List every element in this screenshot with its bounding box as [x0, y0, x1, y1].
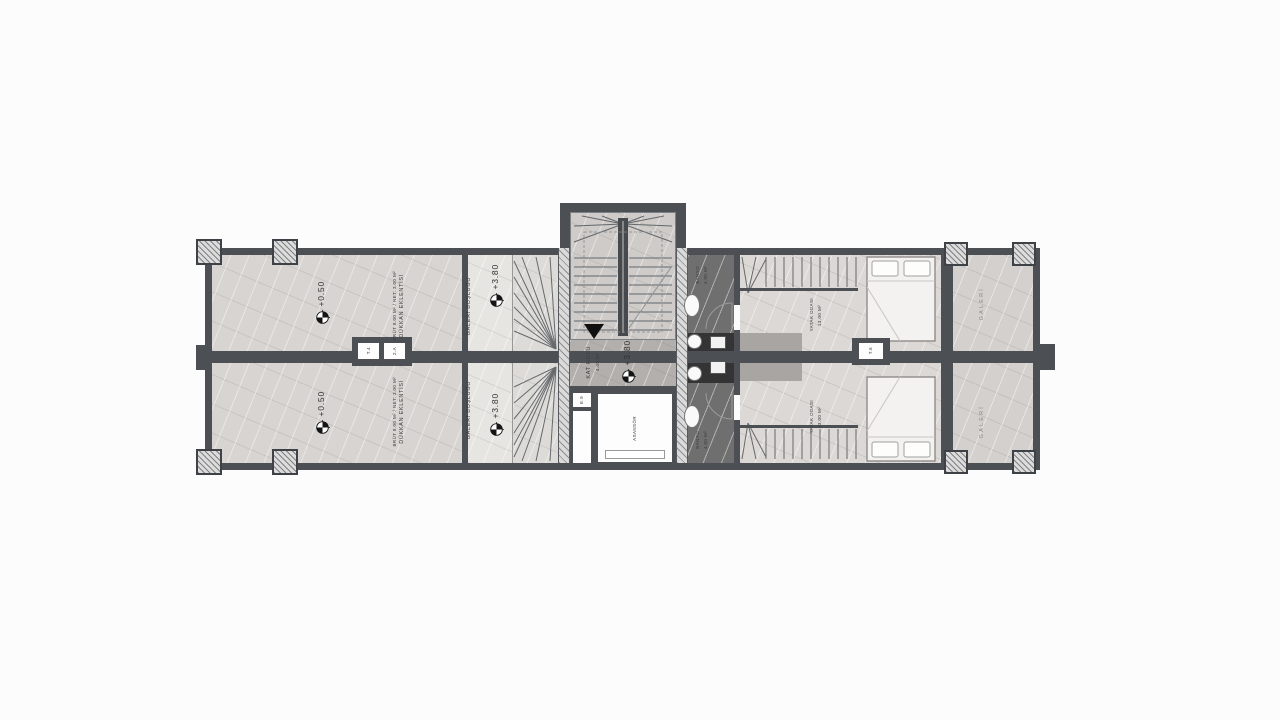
door-arc-icon: [705, 392, 733, 420]
level-marker-icon: [489, 422, 504, 437]
appliance-icon: [710, 336, 726, 349]
gallery-lower-floor: [953, 363, 1033, 463]
wall-middle-left-cap: [196, 345, 212, 370]
level-marker-shop-upper: +0.50: [312, 272, 332, 334]
gallery-label-upper: GALERİ: [974, 276, 992, 332]
gallery-void-label-upper: GALERİ BOŞLUĞU: [463, 262, 477, 350]
wall-tag-box: T.6: [858, 342, 884, 360]
shaft-tag-box: E.9: [572, 392, 592, 408]
elevator-counterweight: [605, 450, 665, 459]
bedroom-lower-dark-strip: [740, 363, 802, 381]
stair-hall-label: KAT HOLÜ 4.00 M²: [582, 336, 604, 388]
gallery-upper-floor: [953, 255, 1033, 351]
bedroom-label-lower: YATAK ODASI 13.00 M²: [804, 388, 828, 446]
level-value: +3.80: [490, 393, 501, 419]
column: [1012, 242, 1036, 266]
level-value: +0.50: [316, 281, 327, 307]
wall-core-top: [560, 203, 686, 212]
core-hatch-wall-left: [558, 248, 570, 463]
column: [944, 450, 968, 474]
sink-icon: [687, 334, 702, 349]
door-arc-icon: [705, 302, 733, 330]
core-staircase: [570, 212, 676, 340]
bed-icon: [866, 256, 936, 342]
level-marker-icon: [315, 420, 330, 435]
wall-top-left: [205, 248, 560, 255]
level-marker-stair-hall: +3.80: [616, 336, 640, 388]
shop-room-lower-floor: [212, 363, 462, 463]
elevator-cabin: ASANSÖR: [596, 392, 674, 464]
core-hatch-wall-right: [676, 248, 688, 463]
wall-bath-bedroom-3: [734, 363, 740, 395]
shaft-tag-label: E.9: [579, 396, 585, 404]
level-value: +0.50: [316, 391, 327, 417]
bathroom-label-lower: BANYO 4.00 M²: [692, 420, 712, 460]
level-value: +3.80: [622, 340, 633, 366]
shaft-box: [572, 410, 592, 464]
wall-core-left: [560, 203, 570, 248]
shop-extension-area: BRÜT 8.00 M² / NET: 3.00 M²: [392, 377, 398, 446]
column: [196, 449, 222, 475]
bedroom-label-upper: YATAK ODASI 13.00 M²: [804, 286, 828, 344]
bed-icon: [866, 376, 936, 462]
column: [272, 239, 298, 265]
shop-room-upper-floor: [212, 255, 462, 351]
stair-hall-area: 4.00 M²: [595, 353, 601, 371]
wall-bedroom-gallery-divider: [941, 255, 953, 463]
bathroom-label-upper: BANYO 4.00 M²: [692, 256, 712, 294]
level-marker-icon: [621, 369, 636, 384]
shop-extension-label-lower: BRÜT 8.00 M² / NET: 3.00 M² DÜKKAN EKLEN…: [384, 364, 414, 460]
shop-extension-name: DÜKKAN EKLENTİSİ: [399, 274, 406, 338]
column: [196, 239, 222, 265]
wall-bottom: [205, 463, 1040, 470]
shop-extension-area: BRÜT 8.00 M² / NET: 3.00 M²: [392, 271, 398, 340]
wall-tag-label: T.6: [868, 347, 874, 354]
wall-tag-label: T.4: [366, 347, 372, 354]
floor-plan-canvas: E.9 ASANSÖR T.4 2.A T.6 BRÜT 8.00 M² / N…: [0, 0, 1280, 720]
bedroom-stair-upper: [740, 255, 858, 295]
level-marker-shop-lower: +0.50: [312, 382, 332, 444]
column: [944, 242, 968, 266]
gallery-label-lower: GALERİ: [974, 394, 992, 450]
toilet-icon: [684, 294, 700, 317]
shop-extension-label-upper: BRÜT 8.00 M² / NET: 3.00 M² DÜKKAN EKLEN…: [384, 258, 414, 354]
left-winder-stair-upper: [512, 255, 558, 351]
level-marker-icon: [315, 310, 330, 325]
wall-top-right: [686, 248, 1040, 255]
elevator-label: ASANSÖR: [632, 416, 638, 441]
wall-tag-box: T.4: [357, 342, 380, 360]
wall-middle-right-cap: [1037, 344, 1055, 370]
wall-bath-bedroom-2: [734, 330, 740, 351]
wall-core-right: [676, 203, 686, 248]
bedroom-stair-lower: [740, 421, 858, 461]
stair-hall-name: KAT HOLÜ: [586, 346, 593, 379]
gallery-void-label-lower: GALERİ BOŞLUĞU: [463, 366, 477, 454]
sink-icon: [687, 366, 702, 381]
column: [1012, 450, 1036, 474]
level-marker-gallery-void-lower: +3.80: [486, 388, 506, 442]
left-winder-stair-lower: [512, 363, 558, 463]
level-marker-gallery-void-upper: +3.80: [486, 260, 506, 312]
appliance-icon: [710, 361, 726, 374]
column: [272, 449, 298, 475]
bedroom-upper-dark-strip: [740, 333, 802, 351]
level-value: +3.80: [490, 264, 501, 290]
level-marker-icon: [489, 293, 504, 308]
shop-extension-name: DÜKKAN EKLENTİSİ: [399, 380, 406, 444]
